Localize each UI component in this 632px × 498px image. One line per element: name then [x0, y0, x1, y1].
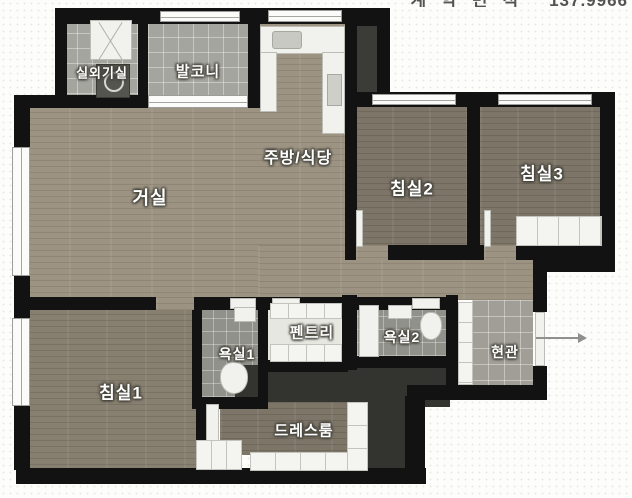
wall-bath1-left	[192, 297, 202, 405]
room-label-bath2: 욕실2	[384, 327, 421, 347]
wall-left-c	[14, 406, 30, 470]
floorplan-canvas: 계약면적137.9966	[0, 0, 632, 498]
shoe-closet	[458, 302, 473, 385]
entrance-arrow-icon	[578, 333, 587, 343]
balcony-window	[160, 11, 240, 22]
room-label-dressroom: 드레스룸	[274, 420, 333, 441]
refrigerator-nook	[357, 26, 377, 98]
bath1-sink-icon	[234, 307, 256, 322]
kitchen-appliance	[327, 74, 342, 106]
kitchen-counter-left	[260, 52, 277, 112]
bedroom3-window	[498, 94, 592, 105]
bath2-shower-icon	[359, 305, 379, 357]
room-label-living: 거실	[132, 184, 167, 210]
room-label-entrance: 현관	[491, 342, 519, 362]
bedroom1-window	[12, 318, 30, 406]
pantry-shelf-top	[270, 303, 342, 319]
bedroom2-window	[372, 94, 456, 105]
bath2-door	[412, 298, 440, 309]
wall-bath1-right	[258, 297, 268, 405]
bedroom2-door-opening	[356, 245, 388, 260]
wall-entrance-bottom	[407, 385, 547, 400]
living-room-window	[12, 147, 30, 276]
ac-unit-icon	[90, 20, 132, 60]
room-label-kitchen: 주방/식당	[264, 144, 332, 168]
wall-left-a	[14, 95, 30, 147]
wall-outdoor-balcony-divider	[138, 24, 148, 103]
bath1-toilet-icon	[220, 362, 248, 394]
kitchen-top-window	[268, 10, 342, 22]
dressroom-wardrobe-right	[347, 402, 368, 471]
bedroom1-closet	[196, 440, 242, 470]
pantry-shelf-bottom	[270, 344, 342, 362]
wall-outdoor-left	[55, 8, 67, 105]
room-label-outdoor-unit: 실외기실	[76, 63, 128, 82]
entrance-arrow-line	[536, 337, 580, 339]
room-label-bedroom3: 침실3	[520, 160, 564, 185]
dressroom-wardrobe-bottom	[250, 452, 350, 471]
balcony-living-sliding-door	[148, 95, 248, 108]
wall-lower-right	[405, 396, 425, 484]
room-label-bath1: 욕실1	[219, 344, 256, 364]
bedroom1-door-opening	[156, 297, 194, 310]
room-label-bedroom2: 침실2	[390, 175, 434, 200]
room-label-pantry: 펜트리	[290, 322, 334, 343]
bedroom3-door-opening	[484, 245, 516, 260]
wall-bed2-bed3-divider	[467, 105, 480, 247]
wall-bath2-bottom	[355, 356, 448, 368]
bedroom2-door-leaf	[356, 210, 363, 247]
kitchen-sink-icon	[272, 31, 302, 49]
bedroom3-door-leaf	[484, 210, 491, 247]
front-door	[535, 312, 545, 366]
contract-area-text: 계약면적137.9966	[411, 0, 628, 7]
wall-entrance-right-a	[533, 258, 547, 312]
wall-balcony-kitchen-divider	[248, 24, 260, 103]
bedroom3-closet	[516, 216, 602, 246]
contract-area-label: 계약면적	[411, 0, 534, 7]
contract-area-value: 137.9966	[549, 0, 628, 7]
wall-bath2-entrance-divider	[446, 295, 458, 387]
room-label-balcony: 발코니	[176, 61, 220, 82]
bath2-toilet-icon	[420, 312, 442, 340]
wall-right-outer	[600, 92, 615, 262]
room-label-bedroom1: 침실1	[99, 379, 143, 404]
bath2-sink-icon	[388, 305, 412, 319]
wall-bedroom1-top	[16, 297, 158, 310]
